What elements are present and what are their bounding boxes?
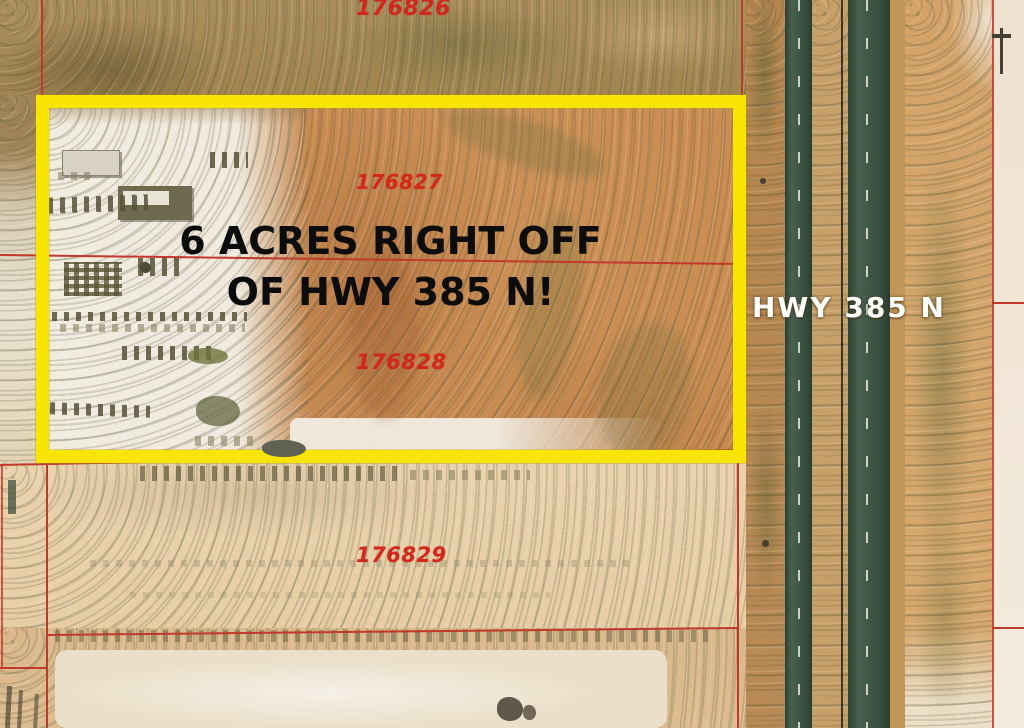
roadside-marker [760,178,766,184]
parcel-label-176827: 176827 [356,170,443,194]
parcel-line [992,302,1024,304]
parcel-line [41,0,43,95]
highway-median [812,0,848,728]
terrain-east-strip [905,0,993,728]
promo-text-line2: OF HWY 385 N! [118,267,663,318]
parcel-label-176826: 176826 [356,0,451,21]
lane-dash-line [866,0,868,728]
terrain-left-strip [0,95,36,463]
parcel-line [1,465,3,668]
lane-dash-line [798,0,800,728]
terrain-highway-east-shoulder [890,0,905,728]
highway-roadway-southbound [785,0,812,728]
debris-object [262,440,306,457]
vegetation-row [130,592,550,598]
terrain-east-parcel [993,0,1024,728]
parcel-line [0,667,47,669]
promo-text: 6 ACRES RIGHT OFF OF HWY 385 N! [118,216,663,318]
terrain-highway-west-shoulder [746,0,785,728]
parcel-label-176829: 176829 [356,543,447,567]
highway-label: HWY 385 N [752,291,946,324]
roadside-marker [762,540,769,547]
ground-object [497,697,523,721]
parcel-line [741,0,743,95]
parcel-line [992,0,994,728]
parcel-line [46,463,48,728]
ground-object [8,480,16,514]
parcel-label-176828: 176828 [356,350,447,374]
median-fence-line [841,0,843,728]
debris-row [410,470,530,480]
utility-pole-crossarm-icon [992,34,1011,38]
highway-roadway-northbound [848,0,890,728]
terrain-cleared-pad [55,650,667,728]
promo-text-line1: 6 ACRES RIGHT OFF [118,216,663,267]
debris-row [140,466,400,481]
parcel-line [737,452,739,728]
ground-object [523,705,536,720]
parcel-line [992,627,1024,629]
aerial-parcel-map: 176826 176827 176828 176829 6 ACRES RIGH… [0,0,1024,728]
